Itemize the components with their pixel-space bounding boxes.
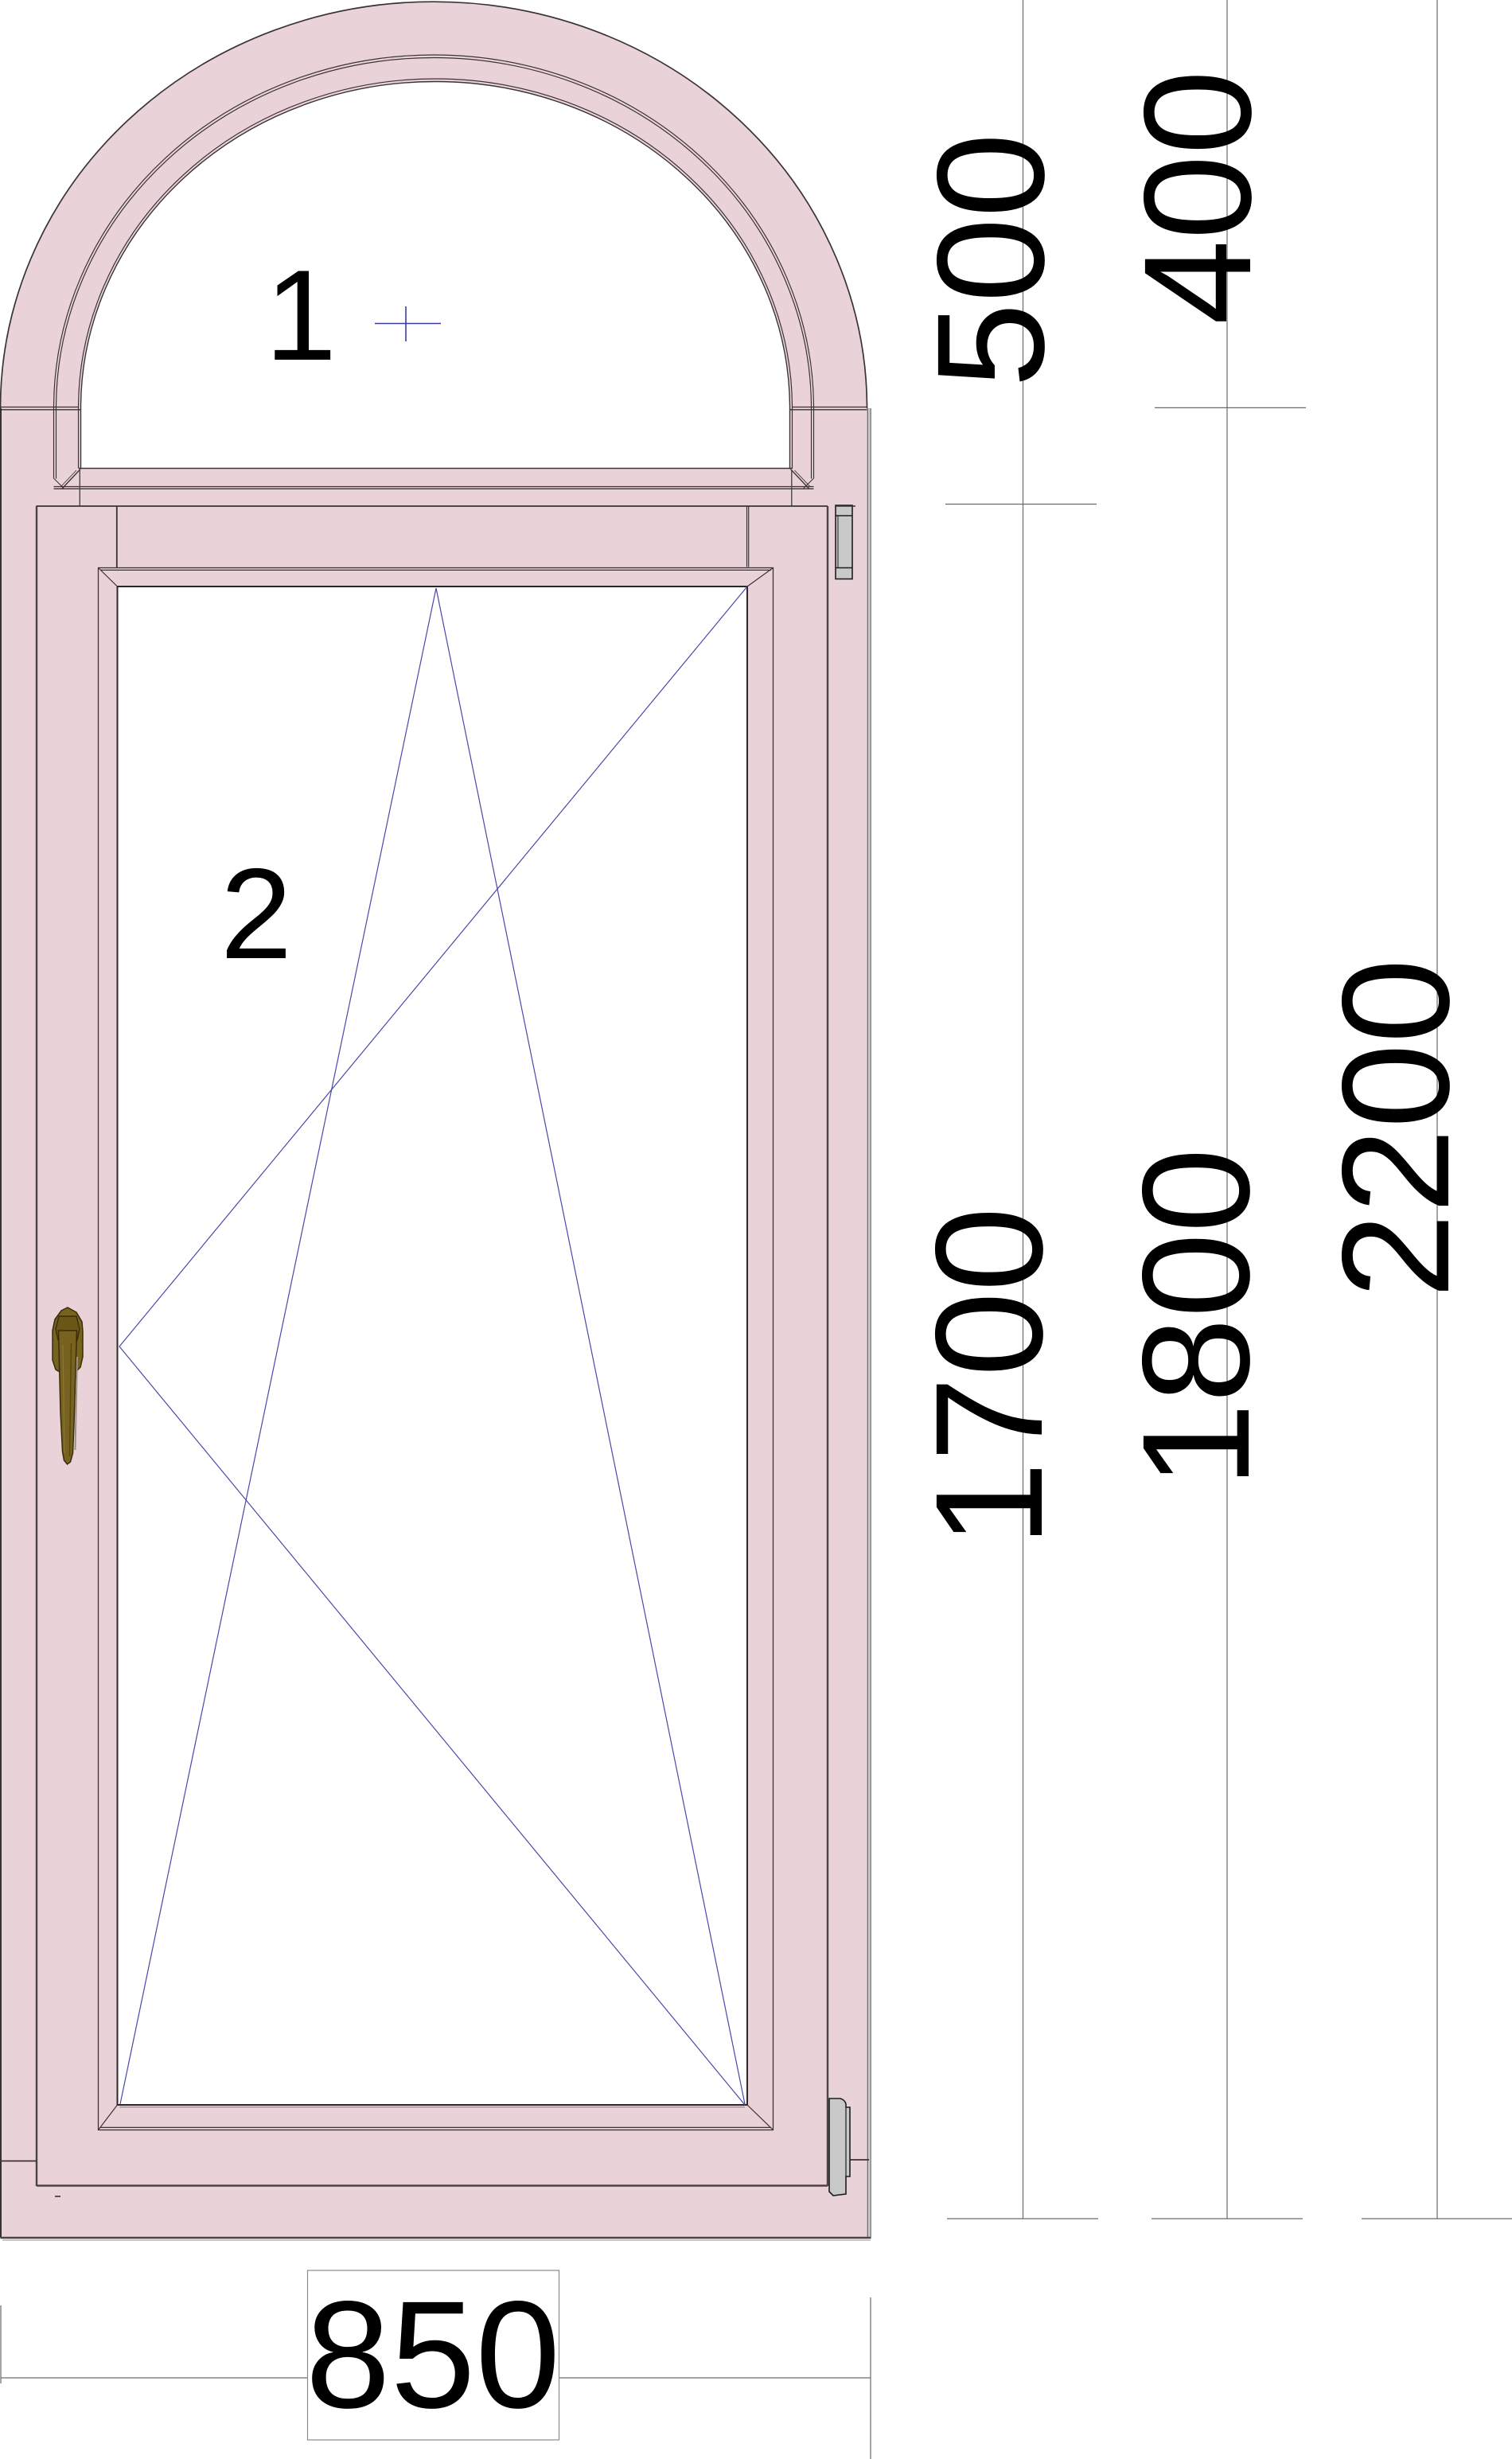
svg-text:2200: 2200 bbox=[1310, 958, 1481, 1298]
svg-text:1800: 1800 bbox=[1110, 1148, 1281, 1487]
svg-text:1700: 1700 bbox=[903, 1206, 1074, 1546]
svg-text:2: 2 bbox=[220, 842, 292, 986]
svg-text:400: 400 bbox=[1112, 70, 1283, 325]
svg-text:500: 500 bbox=[905, 133, 1076, 388]
svg-text:850: 850 bbox=[306, 2269, 560, 2440]
svg-text:1: 1 bbox=[265, 244, 337, 388]
